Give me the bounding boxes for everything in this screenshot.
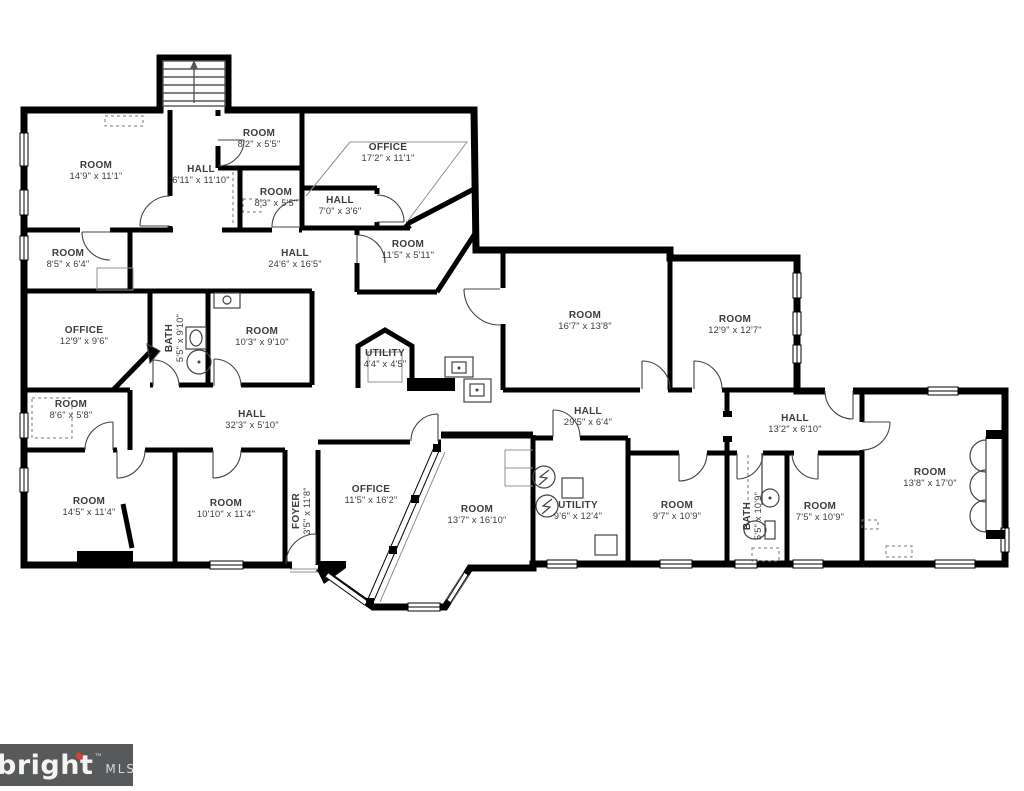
room-label: UTILITY9'6" x 12'4" <box>554 500 602 521</box>
room-label: ROOM13'8" x 17'0" <box>903 467 957 488</box>
logo-suffix: MLS <box>105 762 136 776</box>
staircase <box>163 60 225 106</box>
appliance-icon <box>562 478 583 498</box>
room-label: HALL13'2" x 6'10" <box>768 413 822 434</box>
room-label: OFFICE11'5" x 16'2" <box>345 484 398 505</box>
room-label: ROOM10'10" x 11'4" <box>197 498 255 519</box>
bow-window <box>970 430 1005 539</box>
sink-icon <box>214 293 240 308</box>
water-heater-icon <box>533 466 555 488</box>
glass-wall <box>366 444 445 606</box>
room-label: ROOM8'6" x 5'8" <box>50 399 93 420</box>
room-label: ROOM8'2" x 5'5" <box>238 128 281 149</box>
window <box>793 560 823 568</box>
room-label: HALL24'6" x 16'5" <box>268 248 322 269</box>
room-label: OFFICE17'2" x 11'1" <box>362 142 415 163</box>
sink-icon <box>761 489 779 507</box>
doors <box>82 140 890 564</box>
room-label: ROOM10'3" x 9'10" <box>235 326 289 347</box>
window <box>928 387 958 395</box>
room-label: FOYER3'5" x 11'8" <box>291 487 312 535</box>
room-label: ROOM13'7" x 16'10" <box>448 504 507 525</box>
window <box>20 468 28 492</box>
appliance-icon <box>595 535 617 555</box>
room-label: ROOM16'7" x 13'8" <box>558 310 612 331</box>
window <box>20 413 28 438</box>
vanity-icon <box>186 327 206 349</box>
brightmls-logo: bright™ MLS <box>0 744 133 786</box>
room-label: HALL7'0" x 3'6" <box>319 195 362 216</box>
floor-plan-svg: ROOM14'9" x 11'1"HALL6'11" x 11'10"ROOM8… <box>0 0 1024 791</box>
room-label: ROOM9'7" x 10'9" <box>653 500 701 521</box>
floor-drain-icon <box>445 357 473 377</box>
room-label: UTILITY4'4" x 4'5" <box>364 348 407 369</box>
window <box>210 561 243 569</box>
room-label: ROOM8'5" x 6'4" <box>47 248 90 269</box>
window <box>793 345 801 363</box>
room-label: HALL29'5" x 6'4" <box>564 406 612 427</box>
floorplan-page: ROOM14'9" x 11'1"HALL6'11" x 11'10"ROOM8… <box>0 0 1024 791</box>
room-label: ROOM14'5" x 11'4" <box>63 496 116 517</box>
room-label: OFFICE12'9" x 9'6" <box>60 325 108 346</box>
room-label: ROOM7'5" x 10'9" <box>796 501 844 522</box>
window <box>20 236 28 260</box>
window <box>935 560 975 568</box>
room-label: HALL32'3" x 5'10" <box>225 409 279 430</box>
window <box>793 273 801 298</box>
room-label: ROOM11'5" x 5'11" <box>382 239 434 260</box>
floor-drain-icon <box>464 379 491 402</box>
window <box>20 190 28 215</box>
window <box>793 312 801 335</box>
window <box>735 560 757 568</box>
window <box>547 560 577 568</box>
wall-stub <box>407 378 455 391</box>
window <box>660 560 692 568</box>
logo-trademark: ™ <box>94 753 101 760</box>
room-label: ROOM14'9" x 11'1" <box>70 160 123 181</box>
chimney-bump <box>77 551 133 565</box>
window <box>20 133 28 166</box>
room-label: ROOM8'3" x 5'5" <box>255 187 298 208</box>
window <box>408 603 440 611</box>
room-label: BATH5'5" x 9'10" <box>164 314 185 362</box>
room-label: ROOM12'9" x 12'7" <box>708 314 762 335</box>
